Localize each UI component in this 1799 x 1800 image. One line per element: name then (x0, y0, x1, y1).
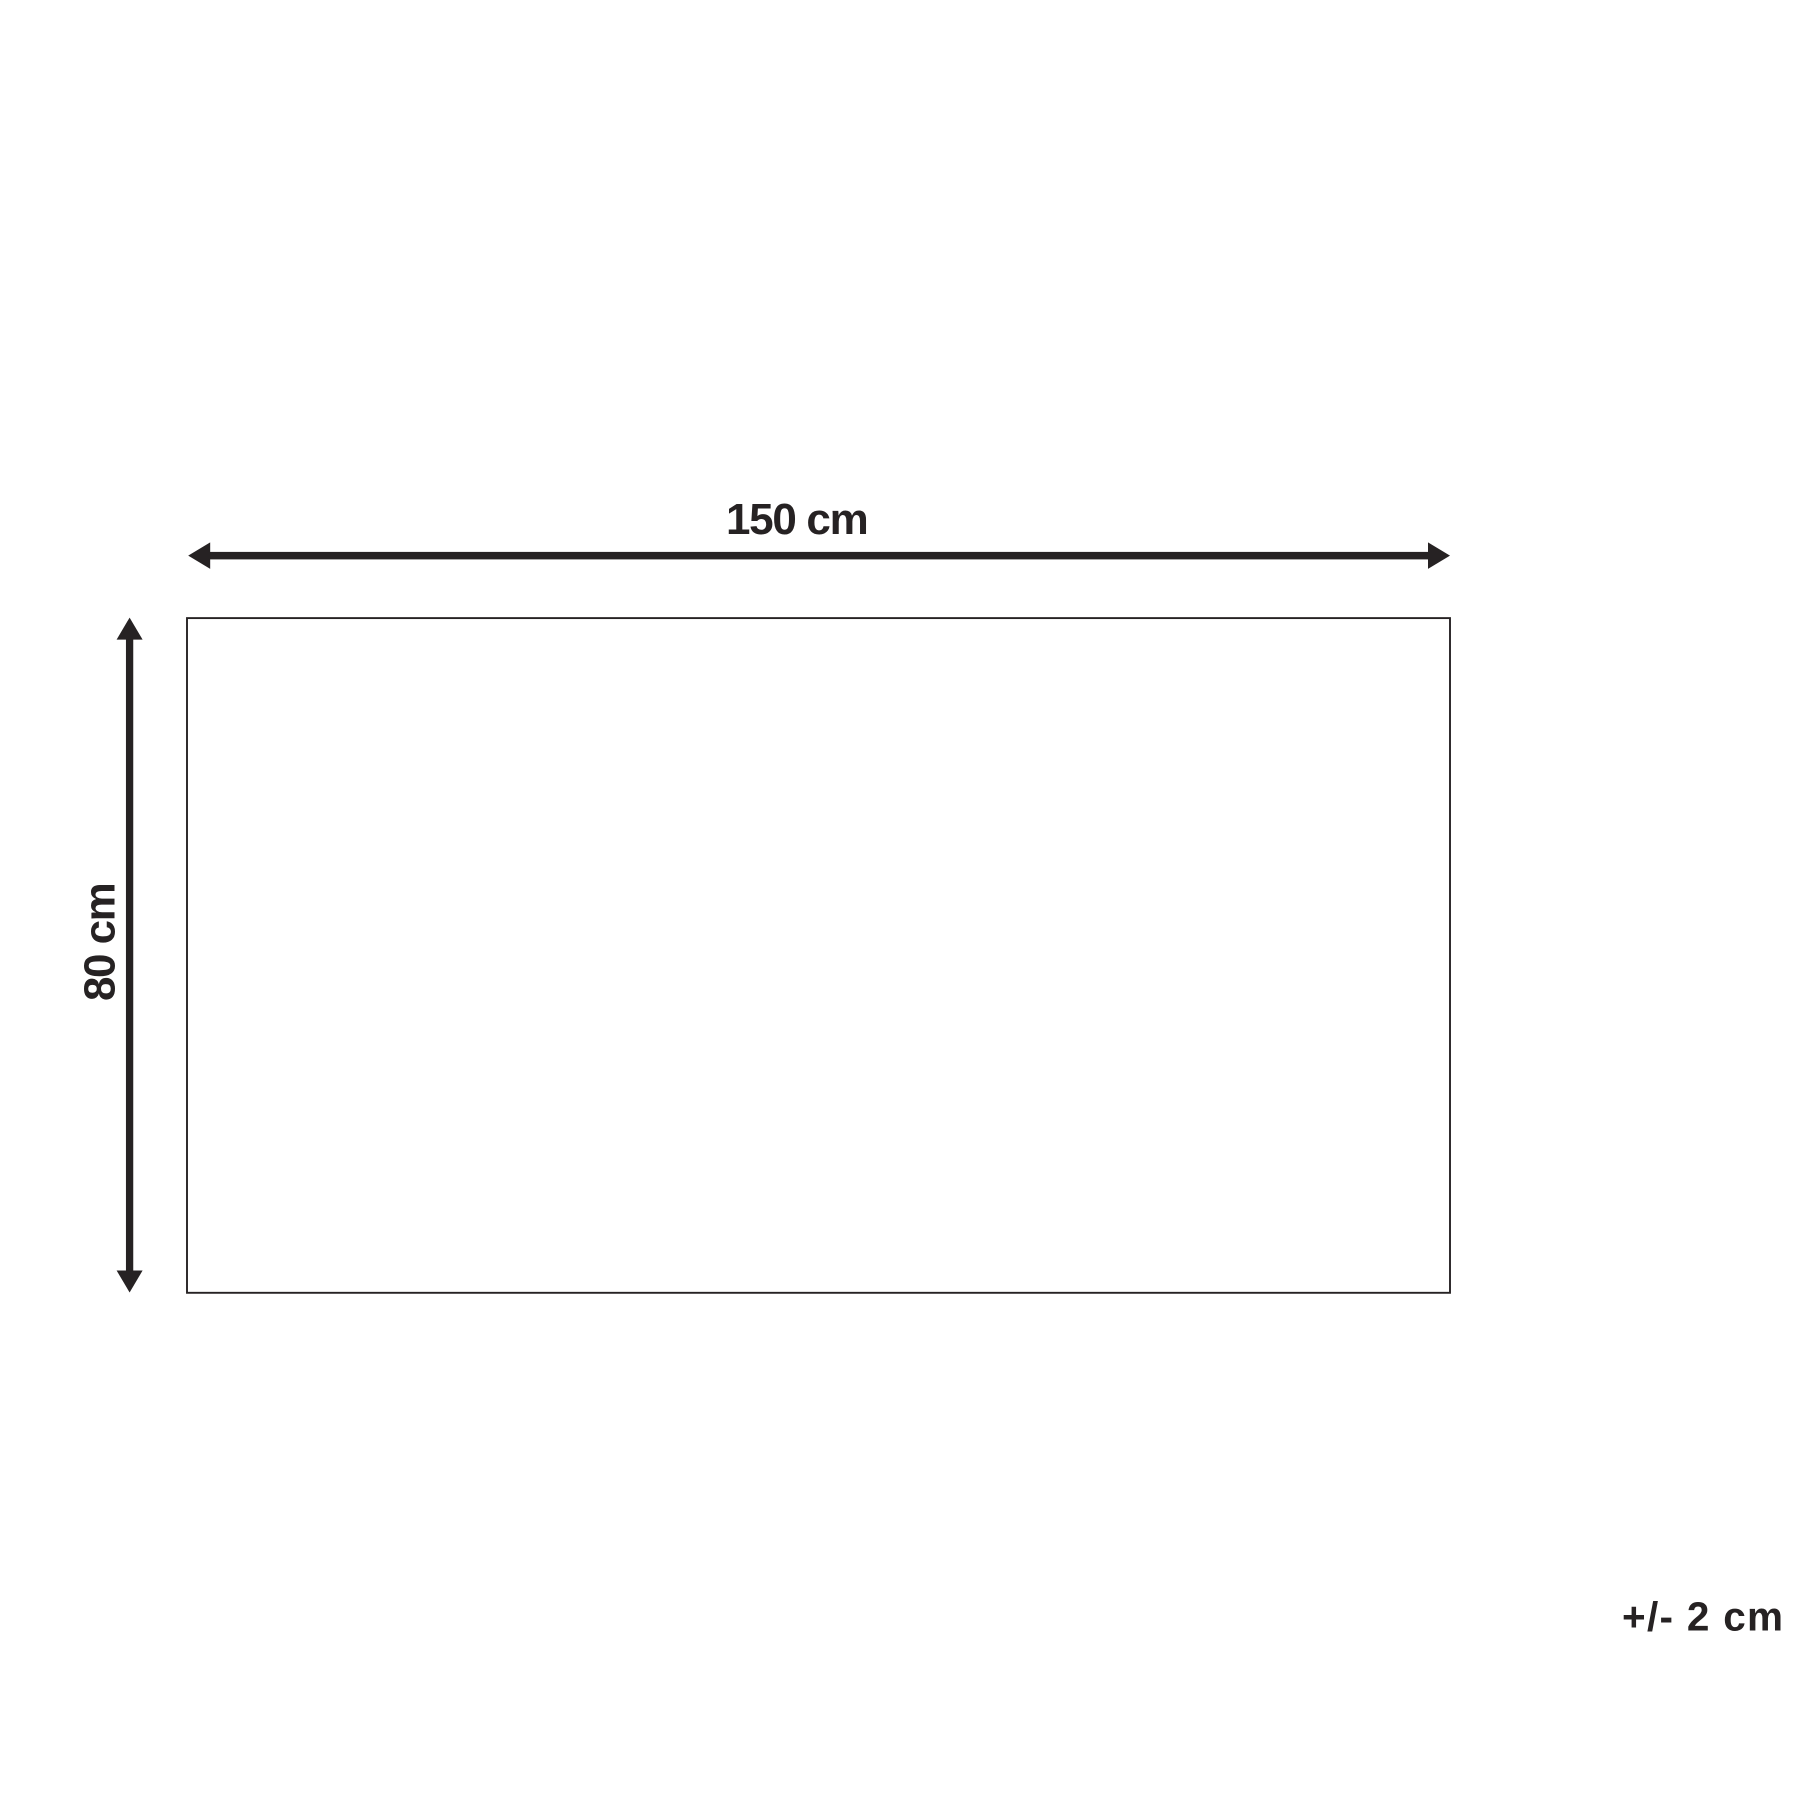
svg-text:150 cm: 150 cm (726, 495, 867, 544)
svg-text:80 cm: 80 cm (76, 884, 125, 1001)
svg-text:+/- 2 cm: +/- 2 cm (1622, 1594, 1784, 1640)
